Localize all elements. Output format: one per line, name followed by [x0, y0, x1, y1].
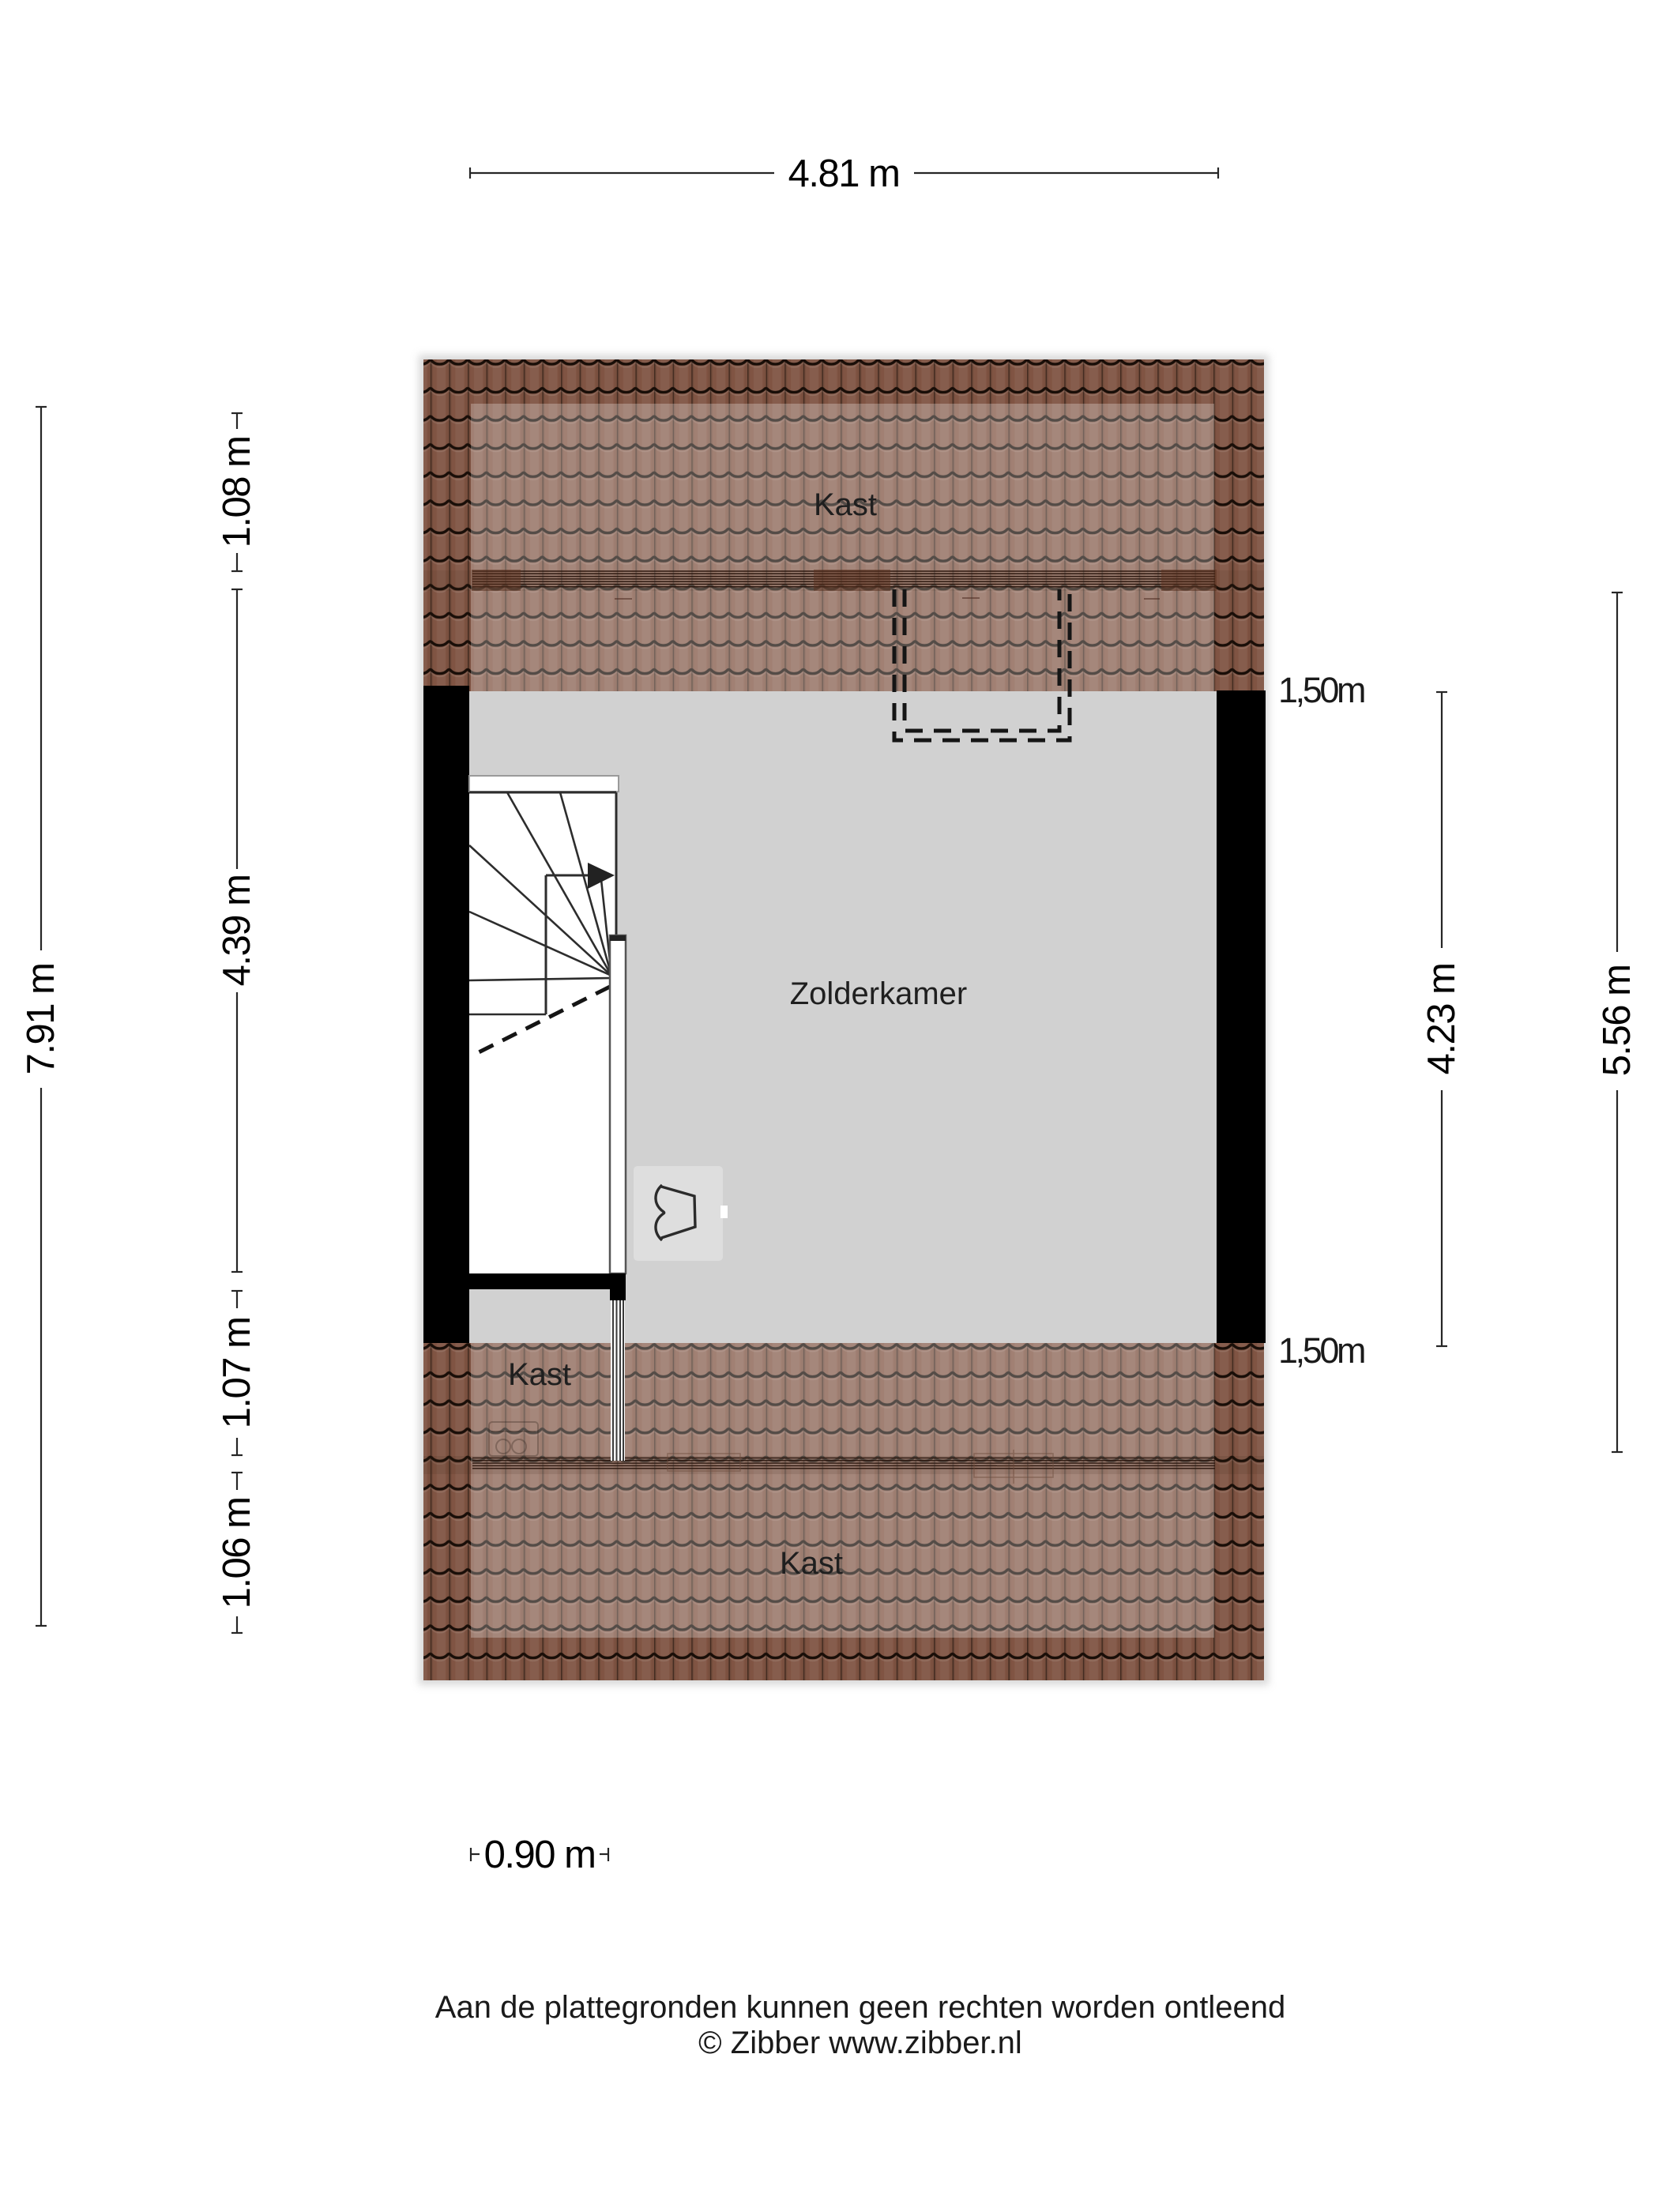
svg-text:4.23 m: 4.23 m [1420, 964, 1463, 1075]
svg-text:1.07 m: 1.07 m [216, 1318, 258, 1429]
svg-text:4.81 m: 4.81 m [788, 152, 900, 195]
svg-text:1,50m: 1,50m [1278, 670, 1364, 710]
svg-text:5.56 m: 5.56 m [1596, 965, 1638, 1077]
svg-text:Kast: Kast [780, 1546, 843, 1581]
svg-text:0.90 m: 0.90 m [484, 1834, 596, 1876]
svg-text:Zolderkamer: Zolderkamer [790, 976, 968, 1011]
svg-text:Kast: Kast [814, 487, 877, 522]
svg-text:1.08 m: 1.08 m [216, 437, 258, 548]
svg-text:Kast: Kast [508, 1357, 571, 1392]
svg-text:1.06 m: 1.06 m [216, 1498, 258, 1609]
svg-text:4.39 m: 4.39 m [216, 875, 258, 987]
svg-text:7.91 m: 7.91 m [20, 964, 62, 1075]
svg-text:Aan de plattegronden kunnen ge: Aan de plattegronden kunnen geen rechten… [435, 1990, 1285, 2025]
svg-text:1,50m: 1,50m [1278, 1330, 1364, 1371]
svg-text:© Zibber www.zibber.nl: © Zibber www.zibber.nl [698, 2026, 1022, 2060]
